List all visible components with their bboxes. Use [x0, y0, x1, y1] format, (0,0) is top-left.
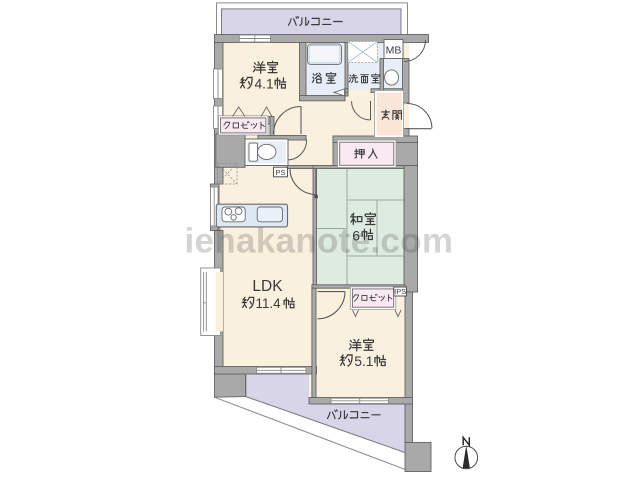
svg-text:11.4: 11.4: [256, 296, 282, 311]
svg-text:MB: MB: [386, 45, 402, 57]
svg-text:IPS: IPS: [394, 287, 406, 296]
svg-text:iehakanote.com: iehakanote.com: [185, 222, 454, 261]
svg-text:PS: PS: [275, 168, 285, 177]
svg-text:LDK: LDK: [252, 278, 283, 295]
svg-text:4.1: 4.1: [255, 76, 274, 91]
svg-text:5.1: 5.1: [354, 354, 373, 369]
